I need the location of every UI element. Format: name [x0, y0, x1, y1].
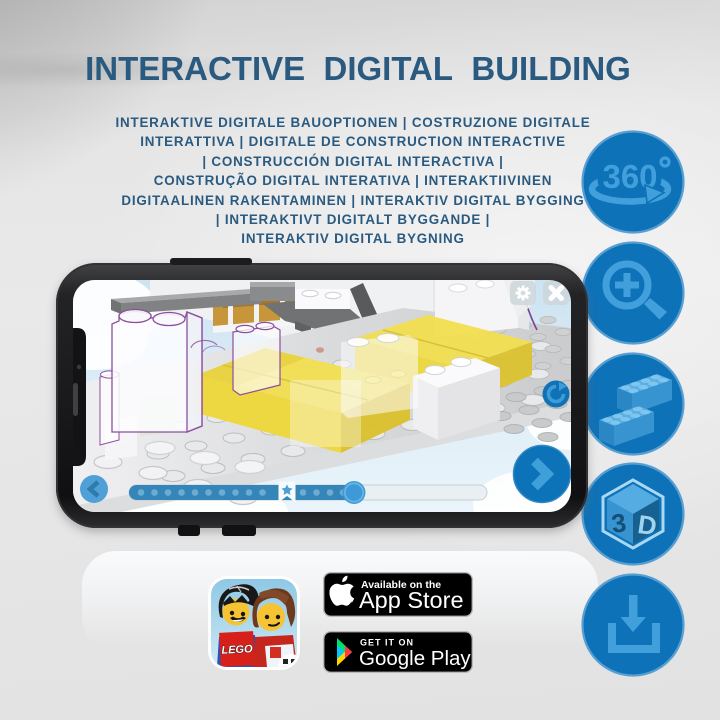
svg-text:App Store: App Store	[359, 587, 464, 613]
svg-text:GET IT ON: GET IT ON	[360, 638, 414, 648]
svg-text:Google Play: Google Play	[359, 647, 471, 670]
svg-text:LEGO: LEGO	[221, 643, 253, 657]
